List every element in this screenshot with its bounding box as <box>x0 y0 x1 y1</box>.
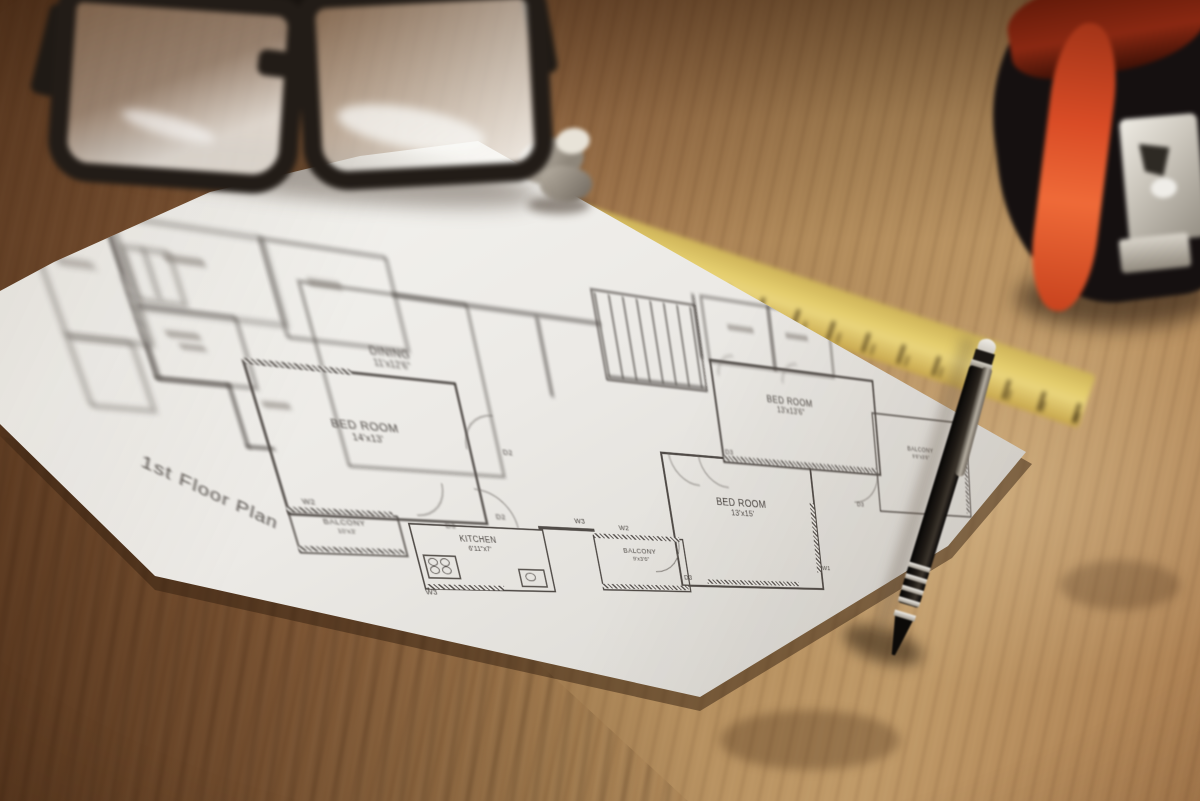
desk-photo: BED ROOM 14'x13' BALCONY 10'x3' KITCHEN … <box>0 0 1200 801</box>
vignette-overlay <box>0 0 1200 801</box>
